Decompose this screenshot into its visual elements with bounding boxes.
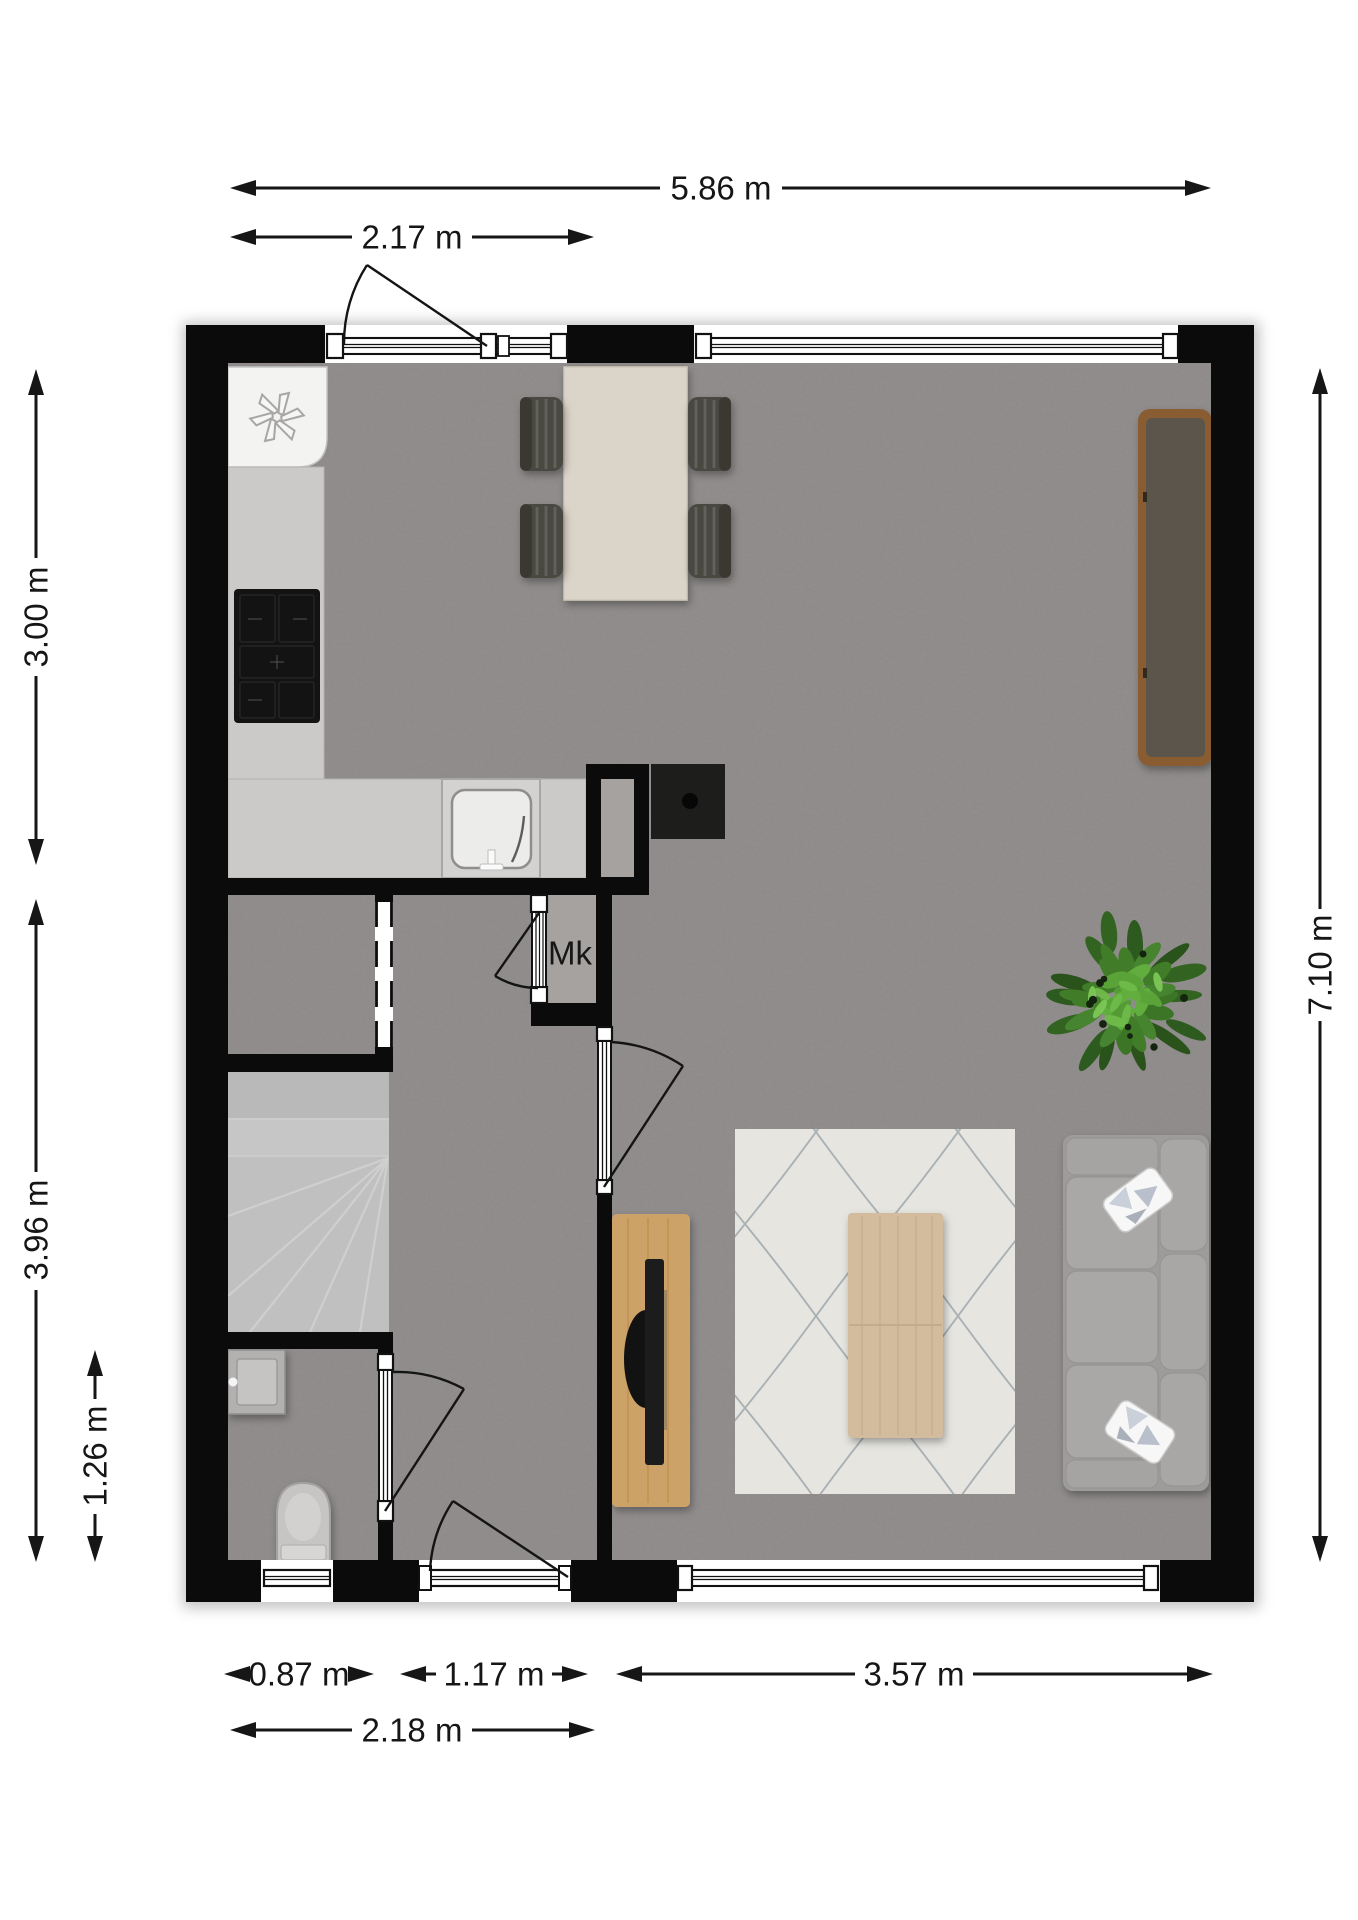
svg-text:7.10 m: 7.10 m [1302,915,1339,1016]
svg-text:5.86 m: 5.86 m [671,170,772,207]
svg-text:3.00 m: 3.00 m [18,567,55,668]
svg-text:1.26 m: 1.26 m [77,1406,114,1507]
svg-text:2.17 m: 2.17 m [362,219,463,256]
svg-text:2.18 m: 2.18 m [362,1712,463,1749]
svg-text:3.96 m: 3.96 m [18,1180,55,1281]
svg-text:0.87 m: 0.87 m [249,1656,350,1693]
svg-text:Mk: Mk [548,935,592,972]
svg-text:1.17 m: 1.17 m [444,1656,545,1693]
svg-text:3.57 m: 3.57 m [864,1656,965,1693]
